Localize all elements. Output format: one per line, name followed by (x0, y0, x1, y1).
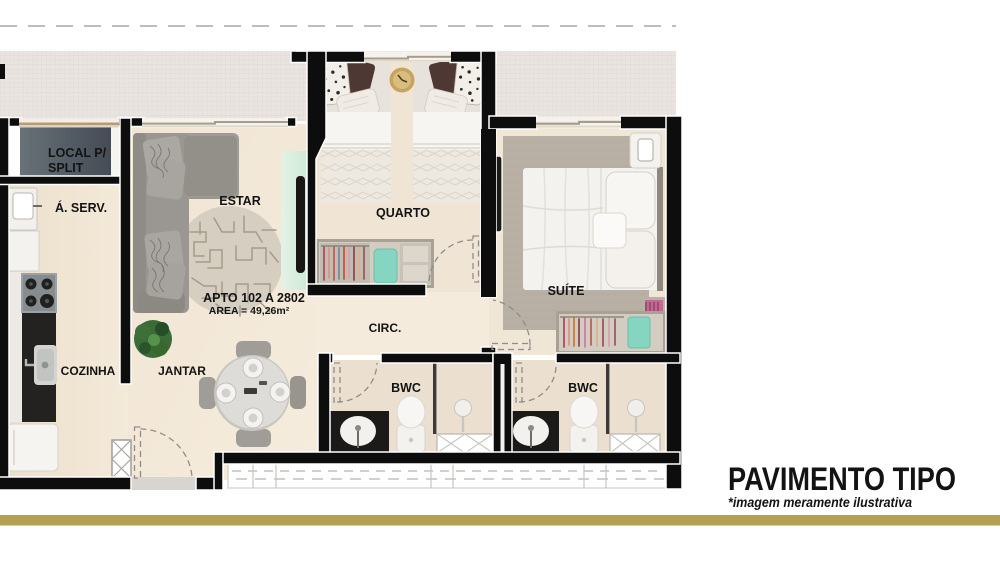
svg-text:COZINHA: COZINHA (61, 364, 116, 378)
svg-text:QUARTO: QUARTO (376, 206, 430, 220)
svg-text:BWC: BWC (391, 381, 421, 395)
svg-text:SUÍTE: SUÍTE (548, 283, 585, 298)
svg-text:BWC: BWC (568, 381, 598, 395)
svg-text:PAVIMENTO TIPO: PAVIMENTO TIPO (728, 461, 956, 497)
svg-text:LOCAL P/: LOCAL P/ (48, 146, 107, 160)
svg-text:CIRC.: CIRC. (369, 321, 402, 335)
svg-text:APTO 102 A 2802: APTO 102 A 2802 (203, 291, 305, 305)
svg-text:SPLIT: SPLIT (48, 161, 84, 175)
svg-text:AREA = 49,26m²: AREA = 49,26m² (209, 305, 290, 317)
svg-text:*imagem meramente ilustrativa: *imagem meramente ilustrativa (728, 495, 912, 510)
svg-text:ESTAR: ESTAR (219, 194, 260, 208)
svg-text:Á. SERV.: Á. SERV. (55, 200, 107, 215)
svg-text:JANTAR: JANTAR (158, 364, 206, 378)
